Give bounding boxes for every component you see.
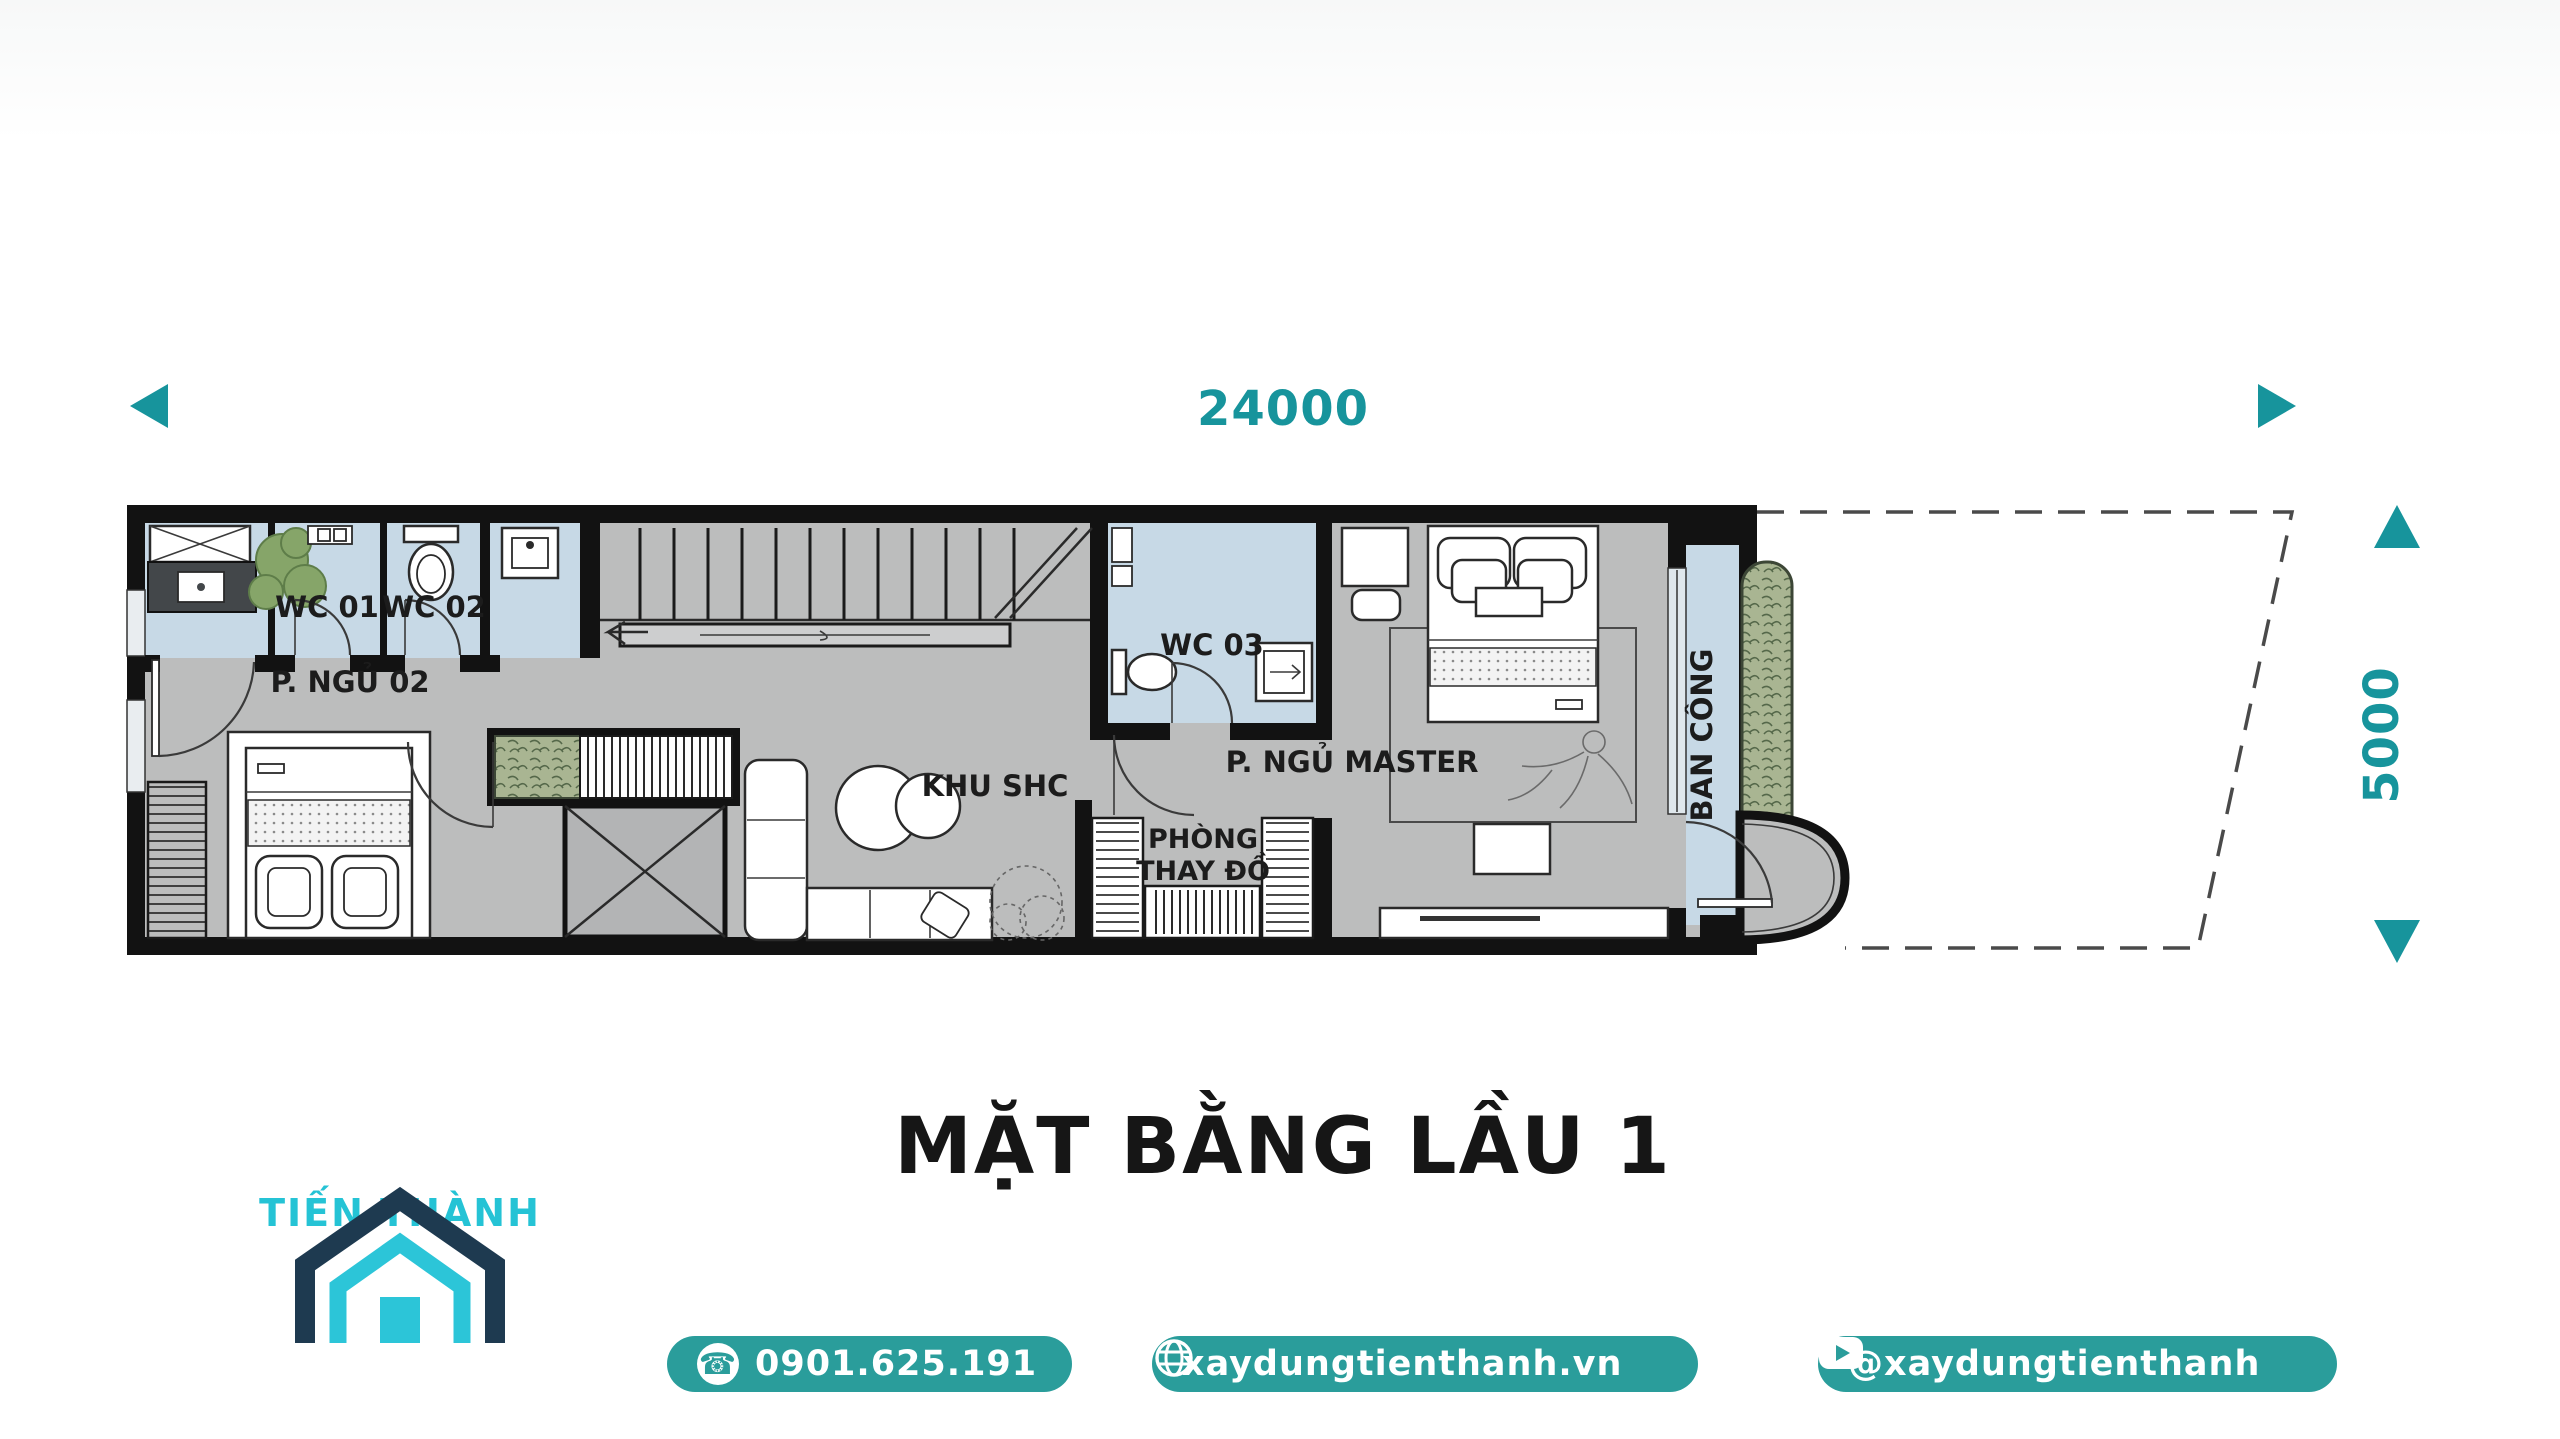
poster-canvas: 24000 5000 — [0, 0, 2560, 1439]
toilet-cistern — [404, 526, 458, 542]
tv-console — [1380, 908, 1668, 938]
wardrobe-right — [1266, 822, 1309, 934]
balcony-door-leaf — [1698, 899, 1772, 907]
curved-balcony — [1740, 815, 1845, 940]
dressing-label-1: PHÒNG — [1148, 823, 1258, 855]
living-label: KHU SHC — [922, 769, 1069, 803]
master-bed — [1428, 526, 1598, 722]
toilet03-cistern — [1112, 650, 1126, 694]
dresser — [1342, 528, 1408, 586]
phone-icon: ☎ — [697, 1343, 739, 1385]
page-title: MẶT BẰNG LẦU 1 — [803, 1102, 1763, 1192]
youtube-icon — [1818, 1336, 1864, 1370]
entry-door-leaf — [152, 660, 159, 756]
stool — [1352, 590, 1400, 620]
sofa-vertical — [745, 760, 807, 940]
tv — [1420, 916, 1540, 921]
globe-icon — [1152, 1336, 1196, 1380]
house-logo-icon — [250, 1185, 550, 1345]
balcony-label: BAN CÔNG — [1685, 649, 1719, 822]
louver-screen — [580, 736, 732, 798]
master-label: P. NGỦ MASTER — [1226, 741, 1479, 779]
ottoman — [1474, 824, 1550, 874]
sink-nook — [502, 528, 558, 578]
wardrobe-left — [1096, 822, 1139, 934]
social-pill[interactable]: @xaydungtienthanh — [1818, 1336, 2337, 1392]
dressing-label-2: THAY ĐỒ — [1136, 851, 1270, 887]
wc02-label: WC 02 — [382, 590, 486, 624]
social-handle: @xaydungtienthanh — [1848, 1344, 2260, 1384]
phone-number: 0901.625.191 — [755, 1344, 1037, 1384]
dimension-height: 5000 — [2354, 505, 2420, 963]
wc03-label: WC 03 — [1160, 628, 1264, 662]
planter-box — [495, 736, 580, 798]
wc01-label: WC 01 — [275, 590, 379, 624]
dim-arrow-up — [2374, 505, 2420, 548]
dim-arrow-right — [2258, 384, 2296, 428]
phone-pill[interactable]: ☎ 0901.625.191 — [667, 1336, 1072, 1392]
dim-arrow-down — [2374, 920, 2420, 963]
website-pill[interactable]: xaydungtienthanh.vn — [1152, 1336, 1698, 1392]
bedroom02-label: P. NGỦ 02 — [270, 661, 429, 699]
dimension-width: 24000 — [130, 381, 2296, 437]
clothes-rack — [1149, 890, 1256, 934]
dim-arrow-left — [130, 384, 168, 428]
dim-width-label: 24000 — [1197, 381, 1369, 437]
website-url: xaydungtienthanh.vn — [1182, 1344, 1622, 1384]
dim-height-label: 5000 — [2354, 666, 2410, 804]
brand-logo: TIẾN THÀNH — [250, 1185, 550, 1235]
wardrobe-bedroom02 — [148, 782, 206, 938]
